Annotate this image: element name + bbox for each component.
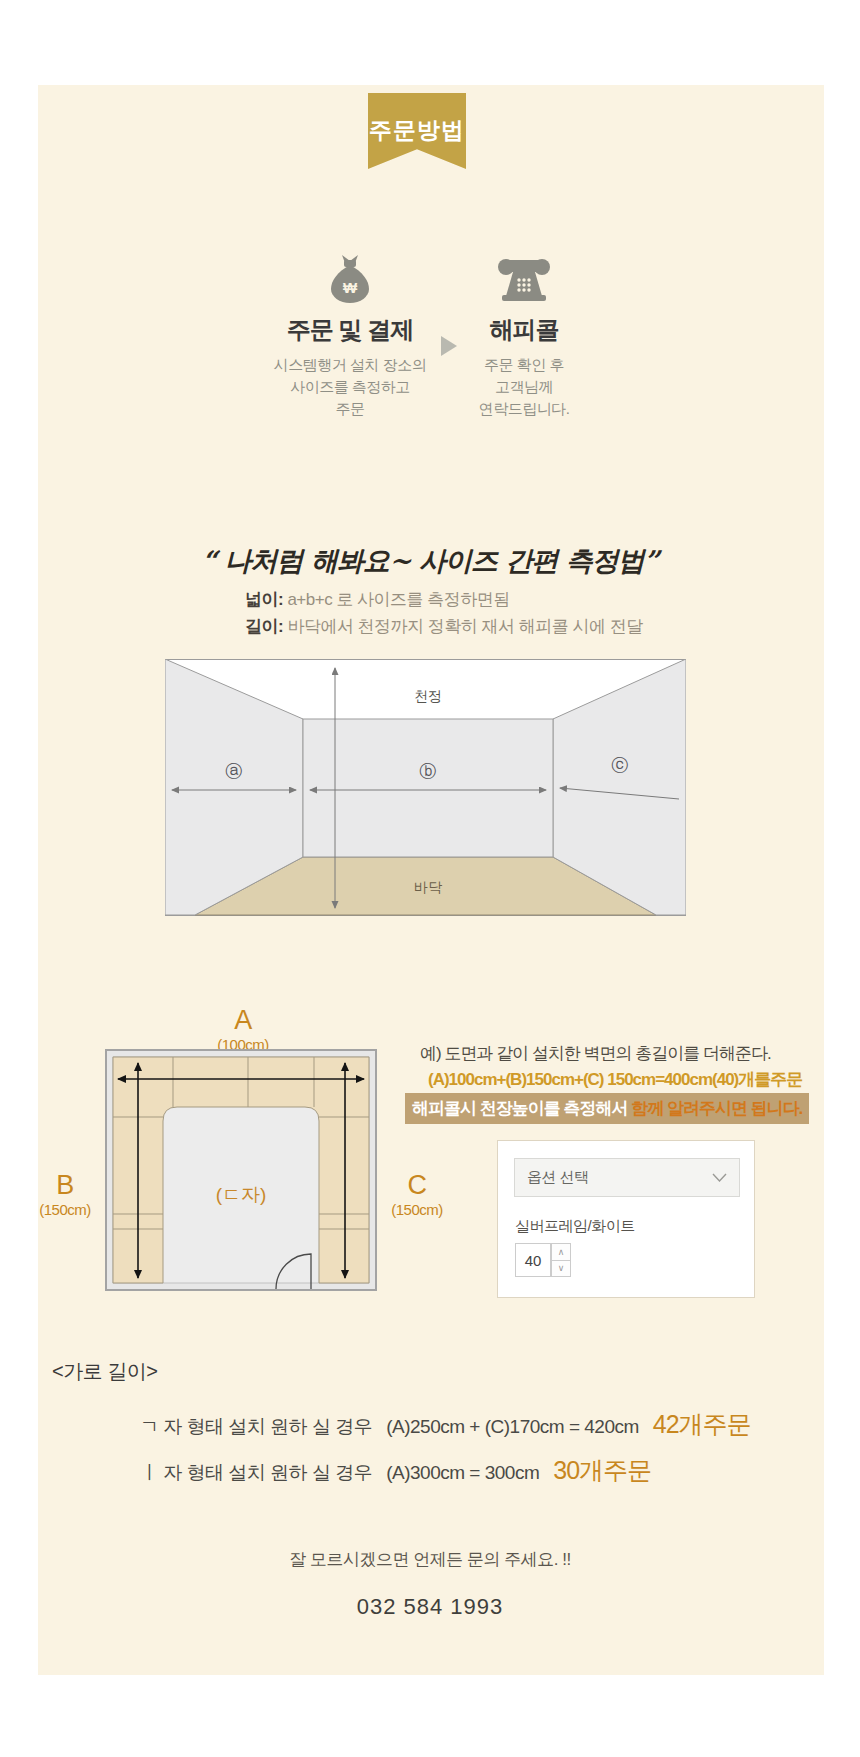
quantity-control: 40 ∧ ∨ [515, 1243, 571, 1277]
ceiling-label: 천정 [414, 688, 442, 704]
case1-formula: (A)250cm + (C)170cm = 420cm [386, 1416, 639, 1438]
plan-c-label: C (150cm) [382, 1170, 452, 1218]
option-panel: 옵션 선택 실버프레임/화이트 40 ∧ ∨ [497, 1140, 755, 1298]
b-size: (150cm) [30, 1201, 100, 1218]
c-size: (150cm) [382, 1201, 452, 1218]
footer-help-text: 잘 모르시겠으면 언제든 문의 주세요. !! [0, 1548, 860, 1571]
step2-desc-line: 연락드립니다. [424, 398, 624, 420]
c-letter: C [382, 1170, 452, 1201]
step2-desc-line: 주문 확인 후 [424, 354, 624, 376]
case-i-shape-row: ㅣ 자 형태 설치 원하 실 경우 (A)300cm = 300cm 30개주문 [140, 1454, 651, 1487]
back-wall [303, 719, 553, 857]
selected-option-name: 실버프레임/화이트 [515, 1217, 635, 1236]
step1-desc-line: 주문 [250, 398, 450, 420]
highlight-part1: 해피콜시 천장높이를 측정해서 [412, 1099, 631, 1118]
horizontal-length-title: <가로 길이> [52, 1358, 157, 1385]
won-symbol: ₩ [343, 279, 358, 296]
step-happy-call: 해피콜 주문 확인 후 고객님께 연락드립니다. [424, 258, 624, 420]
case2-text: ㅣ 자 형태 설치 원하 실 경우 [140, 1460, 372, 1486]
height-label: 길이: [245, 617, 283, 636]
step2-desc-line: 고객님께 [424, 376, 624, 398]
width-label: 넓이: [245, 590, 283, 609]
wall-a-label: ⓐ [226, 762, 243, 781]
floor-label: 바닥 [414, 879, 442, 895]
case-l-shape-row: ㄱ 자 형태 설치 원하 실 경우 (A)250cm + (C)170cm = … [140, 1408, 751, 1441]
floor-plan-diagram: (ㄷ자) [105, 1049, 377, 1291]
case1-text: ㄱ 자 형태 설치 원하 실 경우 [140, 1414, 372, 1440]
option-select-placeholder: 옵션 선택 [527, 1168, 589, 1187]
stepper-down-icon[interactable]: ∨ [551, 1261, 571, 1278]
case2-formula: (A)300cm = 300cm [386, 1462, 539, 1484]
chevron-down-icon [712, 1173, 727, 1182]
height-text: 바닥에서 천정까지 정확히 재서 해피콜 시에 전달 [283, 617, 643, 636]
height-instruction: 길이: 바닥에서 천정까지 정확히 재서 해피콜 시에 전달 [245, 615, 643, 638]
ribbon-label: 주문방법 [368, 115, 466, 146]
wall-c-label: ⓒ [612, 756, 629, 775]
step1-title: 주문 및 결제 [250, 314, 450, 346]
measuring-quote: “ 나처럼 해봐요~ 사이즈 간편 측정법” [0, 543, 860, 579]
width-text: a+b+c 로 사이즈를 측정하면됨 [283, 590, 510, 609]
example-highlight-bar: 해피콜시 천장높이를 측정해서 함께 알려주시면 됩니다. [405, 1093, 809, 1124]
step1-desc-line: 시스템행거 설치 장소의 [250, 354, 450, 376]
wall-b-label: ⓑ [420, 762, 437, 781]
step1-desc-line: 사이즈를 측정하고 [250, 376, 450, 398]
money-bag-icon: ₩ [327, 252, 373, 304]
u-shape-label: (ㄷ자) [216, 1184, 267, 1205]
example-line2: (A)100cm+(B)150cm+(C) 150cm=400cm(40)개를주… [428, 1068, 802, 1091]
case2-order: 30개주문 [553, 1454, 651, 1487]
footer-phone-number: 032 584 1993 [0, 1594, 860, 1620]
case1-order: 42개주문 [653, 1408, 751, 1441]
plan-b-label: B (150cm) [30, 1170, 100, 1218]
phone-icon [497, 258, 551, 304]
a-letter: A [193, 1005, 293, 1036]
plan-a-label: A (100cm) [193, 1005, 293, 1053]
stepper-up-icon[interactable]: ∧ [551, 1243, 571, 1261]
width-instruction: 넓이: a+b+c 로 사이즈를 측정하면됨 [245, 588, 510, 611]
option-select-box[interactable]: 옵션 선택 [514, 1158, 740, 1197]
b-letter: B [30, 1170, 100, 1201]
example-line1: 예) 도면과 같이 설치한 벽면의 총길이를 더해준다. [420, 1042, 771, 1065]
step2-title: 해피콜 [424, 314, 624, 346]
quantity-input[interactable]: 40 [515, 1243, 551, 1277]
room-perspective-diagram: 천정 바닥 ⓐ ⓑ ⓒ [165, 659, 686, 916]
highlight-part2: 함께 알려주시면 됩니다. [631, 1099, 802, 1118]
order-method-page: 주문방법 ₩ 주문 및 결제 시스템행거 설치 장소의 사이즈를 측정하고 주문 [0, 0, 860, 1757]
step-order-payment: ₩ 주문 및 결제 시스템행거 설치 장소의 사이즈를 측정하고 주문 [250, 252, 450, 420]
